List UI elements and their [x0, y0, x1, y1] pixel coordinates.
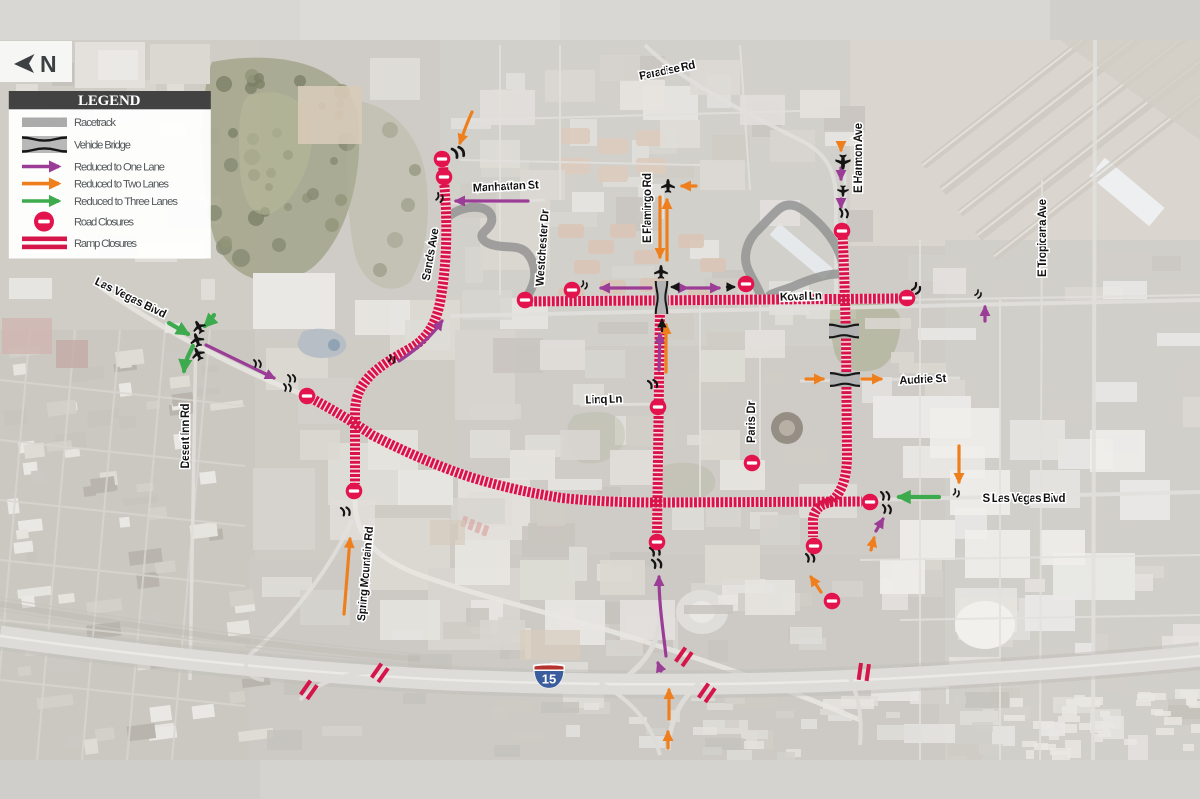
svg-text:E Flamingo Rd: E Flamingo Rd	[642, 173, 654, 243]
svg-text:Linq Ln: Linq Ln	[585, 393, 622, 406]
svg-text:Desert Inn Rd: Desert Inn Rd	[180, 404, 192, 469]
svg-text:Racetrack: Racetrack	[74, 117, 116, 129]
svg-text:E Harmon Ave: E Harmon Ave	[853, 123, 865, 193]
svg-text:Audrie St: Audrie St	[899, 373, 947, 387]
svg-text:S Las Vegas Blvd: S Las Vegas Blvd	[983, 493, 1066, 505]
svg-text:LEGEND: LEGEND	[78, 93, 142, 109]
svg-text:Road Closures: Road Closures	[74, 217, 134, 229]
svg-text:N: N	[40, 51, 57, 77]
svg-text:E Tropicana Ave: E Tropicana Ave	[1037, 199, 1049, 277]
svg-text:Reduced to Two Lanes: Reduced to Two Lanes	[74, 179, 169, 191]
svg-text:Koval Ln: Koval Ln	[780, 290, 822, 303]
svg-text:Reduced to Three Lanes: Reduced to Three Lanes	[74, 196, 178, 208]
svg-text:Vehicle Bridge: Vehicle Bridge	[74, 140, 131, 152]
svg-text:Reduced to One Lane: Reduced to One Lane	[74, 162, 165, 174]
svg-text:Paris Dr: Paris Dr	[746, 400, 758, 443]
svg-text:Ramp Closures: Ramp Closures	[74, 238, 137, 250]
svg-text:15: 15	[542, 672, 556, 687]
